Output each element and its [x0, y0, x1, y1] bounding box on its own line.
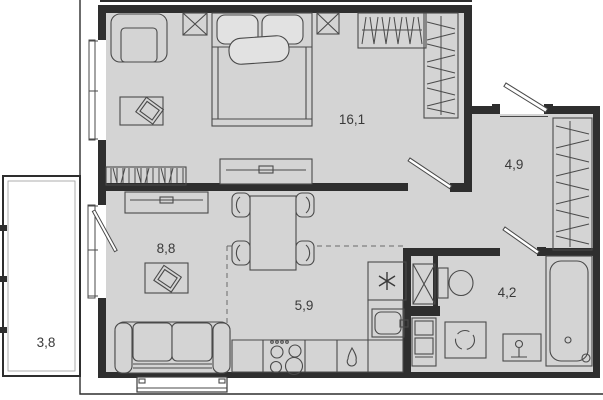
floor-plan: 16,1 4,9 8,8 5,9 4,2 3,8 [0, 0, 603, 400]
sofa [115, 322, 230, 373]
bedroom-east-wall [464, 5, 472, 191]
dining-chair-1 [232, 193, 250, 217]
balcony-mullion-2 [0, 276, 7, 282]
west-wall-seg2 [98, 140, 106, 205]
room-label-bedroom: 16,1 [339, 112, 365, 127]
east-wall [593, 106, 600, 378]
desk [125, 192, 208, 213]
bed [212, 13, 312, 126]
balcony-mullion-3 [0, 327, 7, 333]
sofa-armrest-left [115, 323, 132, 373]
corridor-floor [403, 183, 472, 256]
bathroom-north-wall-left [403, 248, 500, 256]
floor-plan-canvas: 16,1 4,9 8,8 5,9 4,2 3,8 [0, 0, 603, 400]
dining-chair-3 [296, 193, 314, 217]
armchair [111, 14, 167, 62]
entry-door-stop [492, 104, 500, 114]
entry-wall-right [553, 106, 594, 114]
dining-chair-4 [296, 241, 314, 265]
tv-stand [220, 159, 312, 184]
balcony-mullion-1 [0, 225, 7, 231]
sofa-cushion-left [133, 323, 172, 361]
room-label-hallway: 4,9 [505, 157, 524, 172]
nightstand-left [183, 13, 207, 35]
bay-window [137, 377, 227, 392]
dining-table [250, 196, 296, 270]
sofa-armrest-right [213, 323, 230, 373]
sofa-cushion-right [172, 323, 212, 361]
west-wall-seg3 [98, 298, 106, 372]
room-label-balcony: 3,8 [37, 335, 56, 350]
room-label-bathroom: 4,2 [498, 285, 517, 300]
west-wall-seg1 [98, 5, 106, 40]
entry-wall-left [472, 106, 493, 114]
hallway-floor [462, 114, 594, 256]
deco-pillow [228, 35, 290, 65]
room-label-kitchen: 5,9 [295, 298, 314, 313]
north-wall [98, 5, 472, 13]
nightstand-right [317, 13, 339, 34]
dining-chair-2 [232, 241, 250, 265]
top-facade-line [100, 0, 472, 2]
room-label-living: 8,8 [157, 241, 176, 256]
